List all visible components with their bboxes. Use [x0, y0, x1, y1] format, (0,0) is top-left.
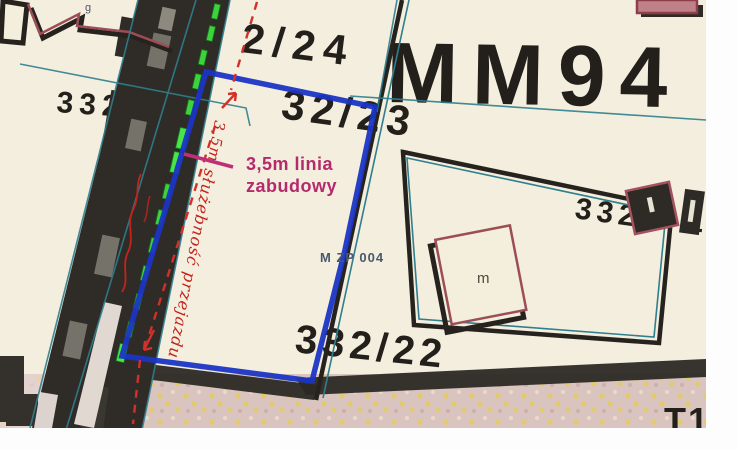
building-line-label-1: 3,5m linia: [246, 154, 334, 174]
building-line-label-2: zabudowy: [246, 176, 337, 196]
map-canvas: 2/24 32/23 332/22 332 /7 332 1 MM94 T1: [0, 0, 738, 450]
house-usage-letter: m: [477, 270, 490, 287]
corner-letter-g: g: [85, 2, 91, 14]
building-top-left-corner: [1, 1, 27, 43]
cadastral-map-scan: 2/24 32/23 332/22 332 /7 332 1 MM94 T1: [0, 0, 738, 450]
plan-unit-label: M ZP 004: [320, 250, 384, 265]
page-margin-right: [706, 0, 738, 450]
building-top-right: [637, 0, 703, 17]
building-small-red: [626, 182, 678, 234]
page-margin-bottom: [0, 428, 738, 450]
grid-reference-label: MM94: [386, 25, 683, 126]
